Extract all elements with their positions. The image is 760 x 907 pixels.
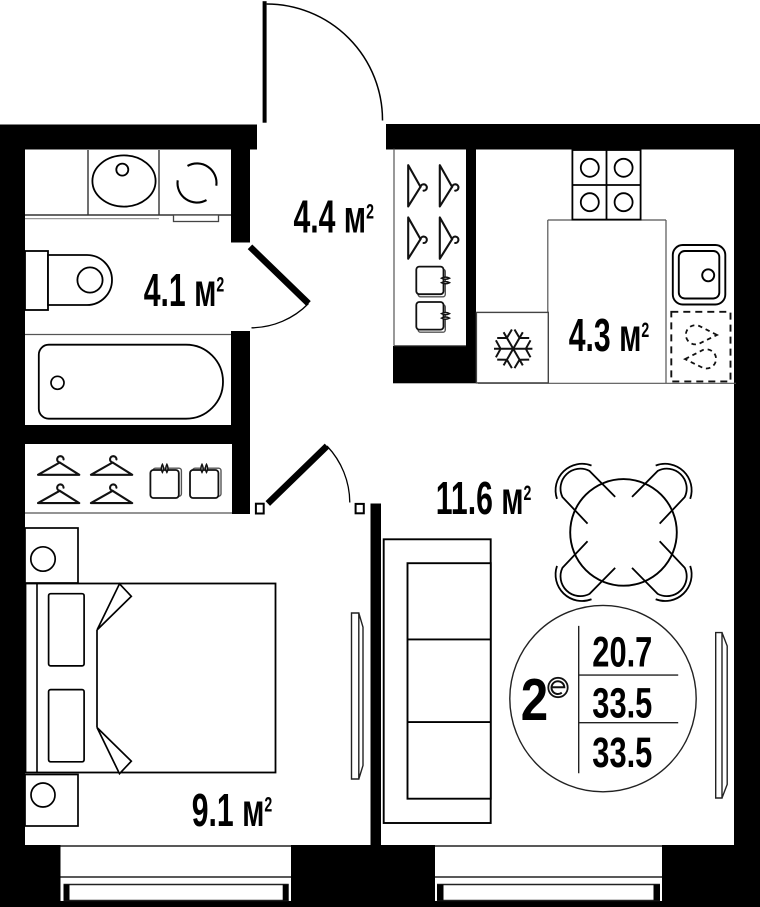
svg-text:33.5: 33.5: [592, 678, 652, 726]
svg-text:4.1 м2: 4.1 м2: [144, 266, 224, 317]
svg-text:4.3 м2: 4.3 м2: [569, 311, 649, 362]
svg-text:11.6 м2: 11.6 м2: [436, 474, 532, 525]
svg-text:2: 2: [521, 667, 548, 733]
svg-text:9.1 м2: 9.1 м2: [192, 786, 272, 837]
svg-text:33.5: 33.5: [592, 728, 652, 776]
svg-text:20.7: 20.7: [592, 627, 652, 675]
svg-text:4.4 м2: 4.4 м2: [293, 192, 373, 243]
